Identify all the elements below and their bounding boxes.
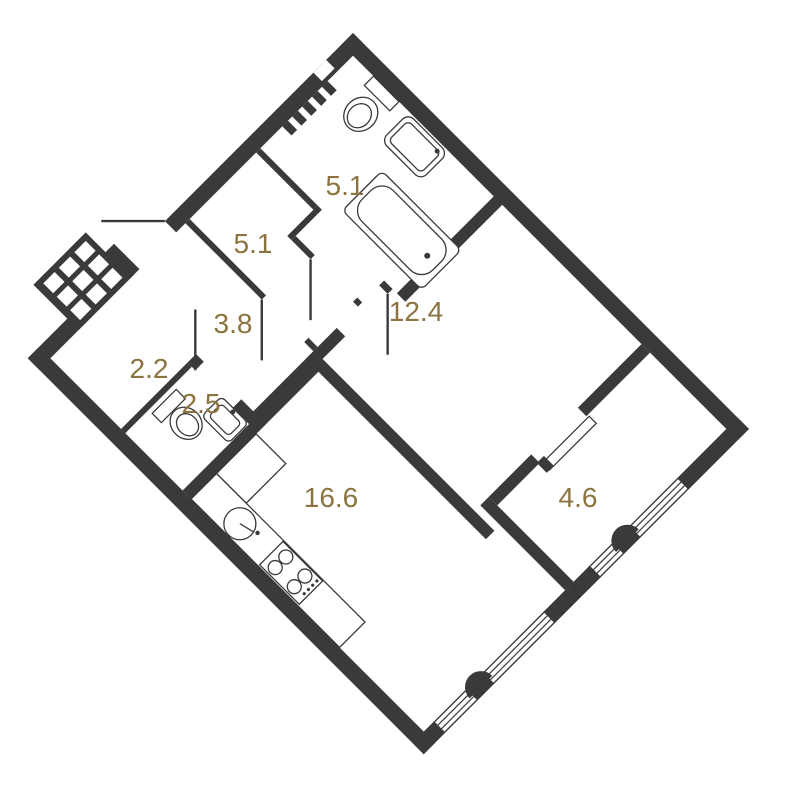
bathroom-door-leaf xyxy=(280,259,341,320)
wall-hall-east-a xyxy=(379,280,392,293)
window-glazing-kitchen xyxy=(434,612,555,733)
room-label-balcony: 4.6 xyxy=(559,482,598,513)
wall-exterior-left-upper xyxy=(165,33,364,232)
wall-balcony-west-upper xyxy=(578,344,650,416)
floor-plan: 5.1 5.1 12.4 3.8 2.2 2.5 16.6 4.6 xyxy=(0,0,800,800)
window-glazing-balcony xyxy=(590,478,689,577)
balcony-door-leaf xyxy=(537,413,596,472)
room-label-corridor: 3.8 xyxy=(214,308,253,339)
wall-bathroom-step xyxy=(287,206,322,241)
floor-plan-canvas: 5.1 5.1 12.4 3.8 2.2 2.5 16.6 4.6 xyxy=(0,0,800,800)
wall-bathroom-south-right-a xyxy=(291,236,314,259)
room-label-living-room: 12.4 xyxy=(389,296,444,327)
room-label-wc: 2.5 xyxy=(182,388,221,419)
room-label-hallway: 5.1 xyxy=(234,228,273,259)
wall-bathroom-south-left xyxy=(256,148,318,210)
wall-exterior-right-top xyxy=(678,418,749,489)
entrance-door-leaf xyxy=(101,189,165,253)
room-label-bathroom: 5.1 xyxy=(326,170,365,201)
plan-rotated-group xyxy=(0,0,749,754)
vent-shaft xyxy=(33,224,139,330)
wall-bathroom-south-right-b xyxy=(353,297,362,306)
wall-balcony-west-lower xyxy=(489,454,540,505)
room-label-kitchen-living: 16.6 xyxy=(304,482,359,513)
room-label-entry-hall: 2.2 xyxy=(130,353,169,384)
